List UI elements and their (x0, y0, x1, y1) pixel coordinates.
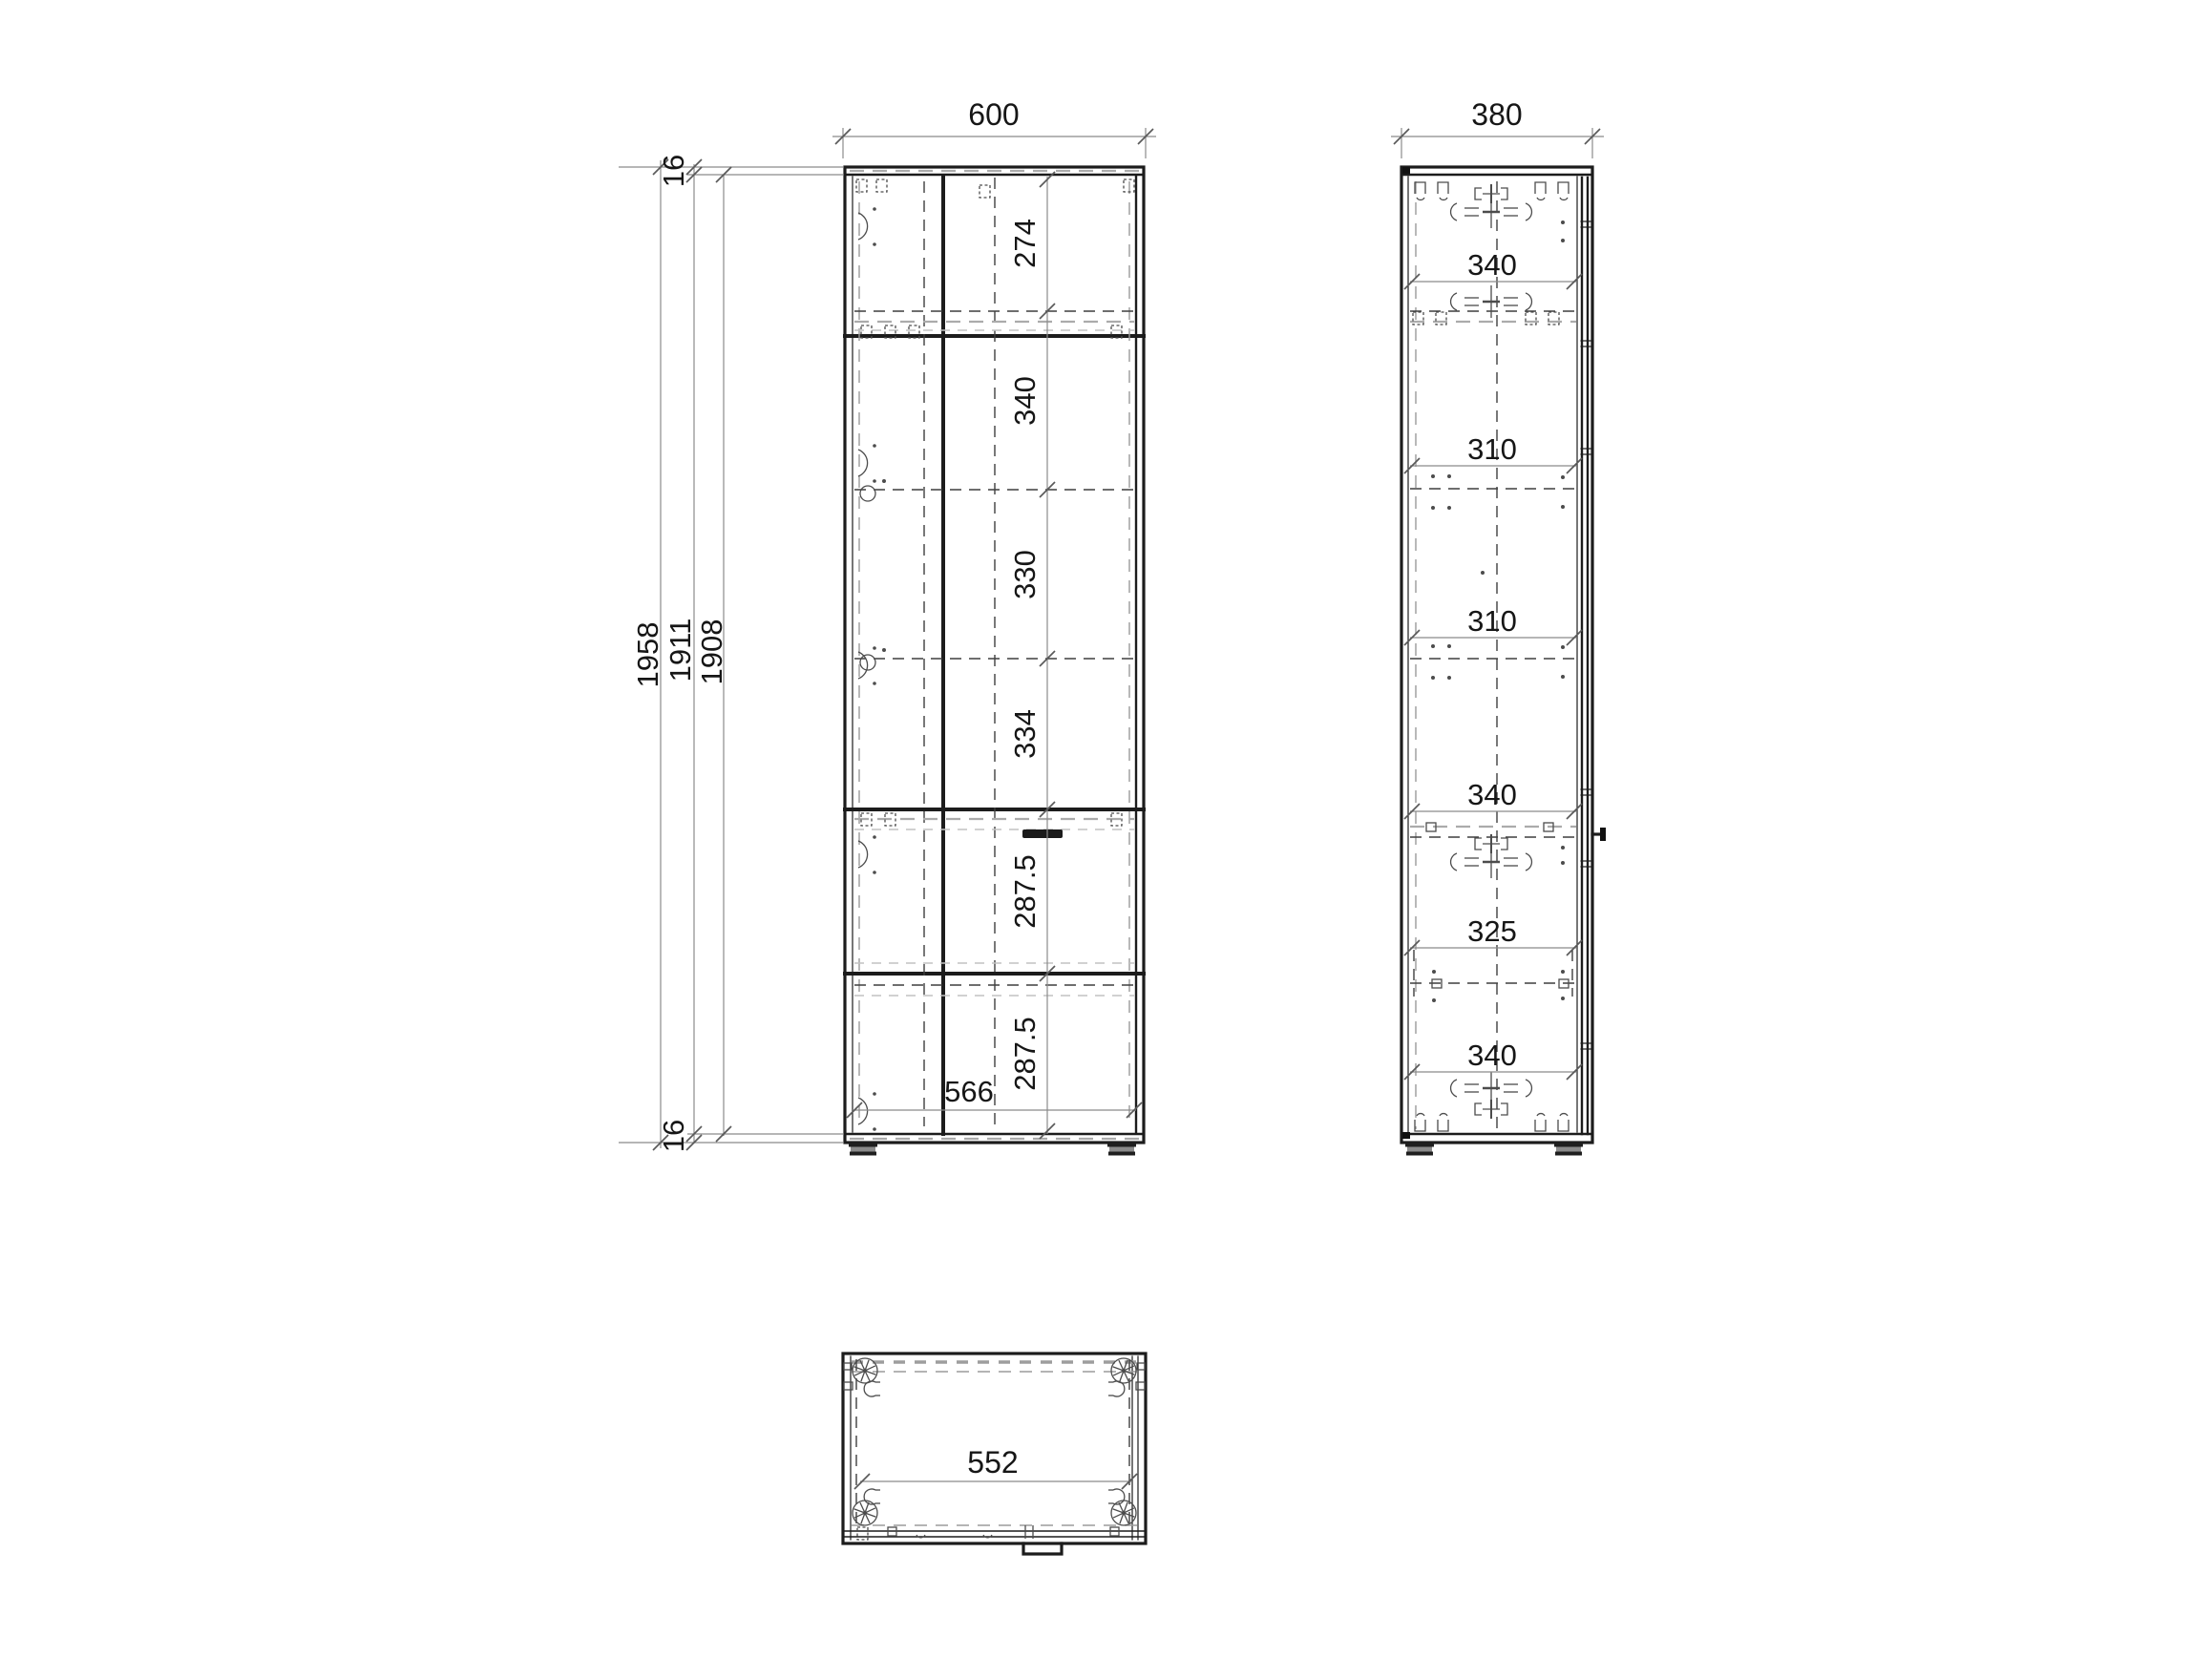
front-section-3-label: 330 (1008, 550, 1042, 599)
plan-interior-width-label: 552 (967, 1445, 1018, 1480)
side-section-6-label: 340 (1467, 1039, 1517, 1072)
front-bottom-thickness-label: 16 (657, 1120, 690, 1152)
side-section-3-label: 310 (1467, 604, 1517, 638)
front-section-5-label: 287.5 (1008, 854, 1042, 929)
door-handle (1600, 828, 1606, 841)
front-section-6-label: 287.5 (1008, 1017, 1042, 1091)
front-top-thickness-label: 16 (657, 155, 690, 187)
side-depth-dimension: 380 (1391, 97, 1604, 158)
side-view: 380 340 310 310 340 325 340 (1391, 97, 1606, 1156)
foot-icon (1107, 1143, 1136, 1156)
front-height-total-label: 1958 (631, 622, 664, 688)
front-interior-width-label: 566 (944, 1075, 994, 1108)
front-section-4-label: 334 (1008, 709, 1042, 759)
drawer-handle (1022, 829, 1063, 838)
foot-icon (849, 1143, 877, 1156)
side-section-5-label: 325 (1467, 914, 1517, 948)
foot-icon (1554, 1143, 1583, 1156)
front-height-body-label: 1911 (664, 619, 697, 682)
door-handle-plan (1023, 1543, 1062, 1554)
side-section-2-label: 310 (1467, 432, 1517, 466)
front-height-interior-label: 1908 (695, 619, 728, 685)
front-width-dimension: 600 (832, 97, 1156, 158)
foot-icon (1405, 1143, 1434, 1156)
front-width-label: 600 (968, 97, 1019, 132)
cabinet-technical-drawing: 600 16 16 1958 1911 1908 274 340 330 334… (0, 0, 2212, 1658)
front-height-dimensions: 16 16 1958 1911 1908 (619, 155, 843, 1152)
drawing-svg: 600 16 16 1958 1911 1908 274 340 330 334… (0, 0, 2212, 1658)
side-section-4-label: 340 (1467, 778, 1517, 811)
front-section-2-label: 340 (1008, 376, 1042, 426)
side-section-1-label: 340 (1467, 248, 1517, 282)
side-depth-label: 380 (1471, 97, 1522, 132)
front-view: 600 16 16 1958 1911 1908 274 340 330 334… (619, 97, 1156, 1156)
plan-view: 552 (843, 1354, 1146, 1554)
front-section-1-label: 274 (1008, 219, 1042, 268)
